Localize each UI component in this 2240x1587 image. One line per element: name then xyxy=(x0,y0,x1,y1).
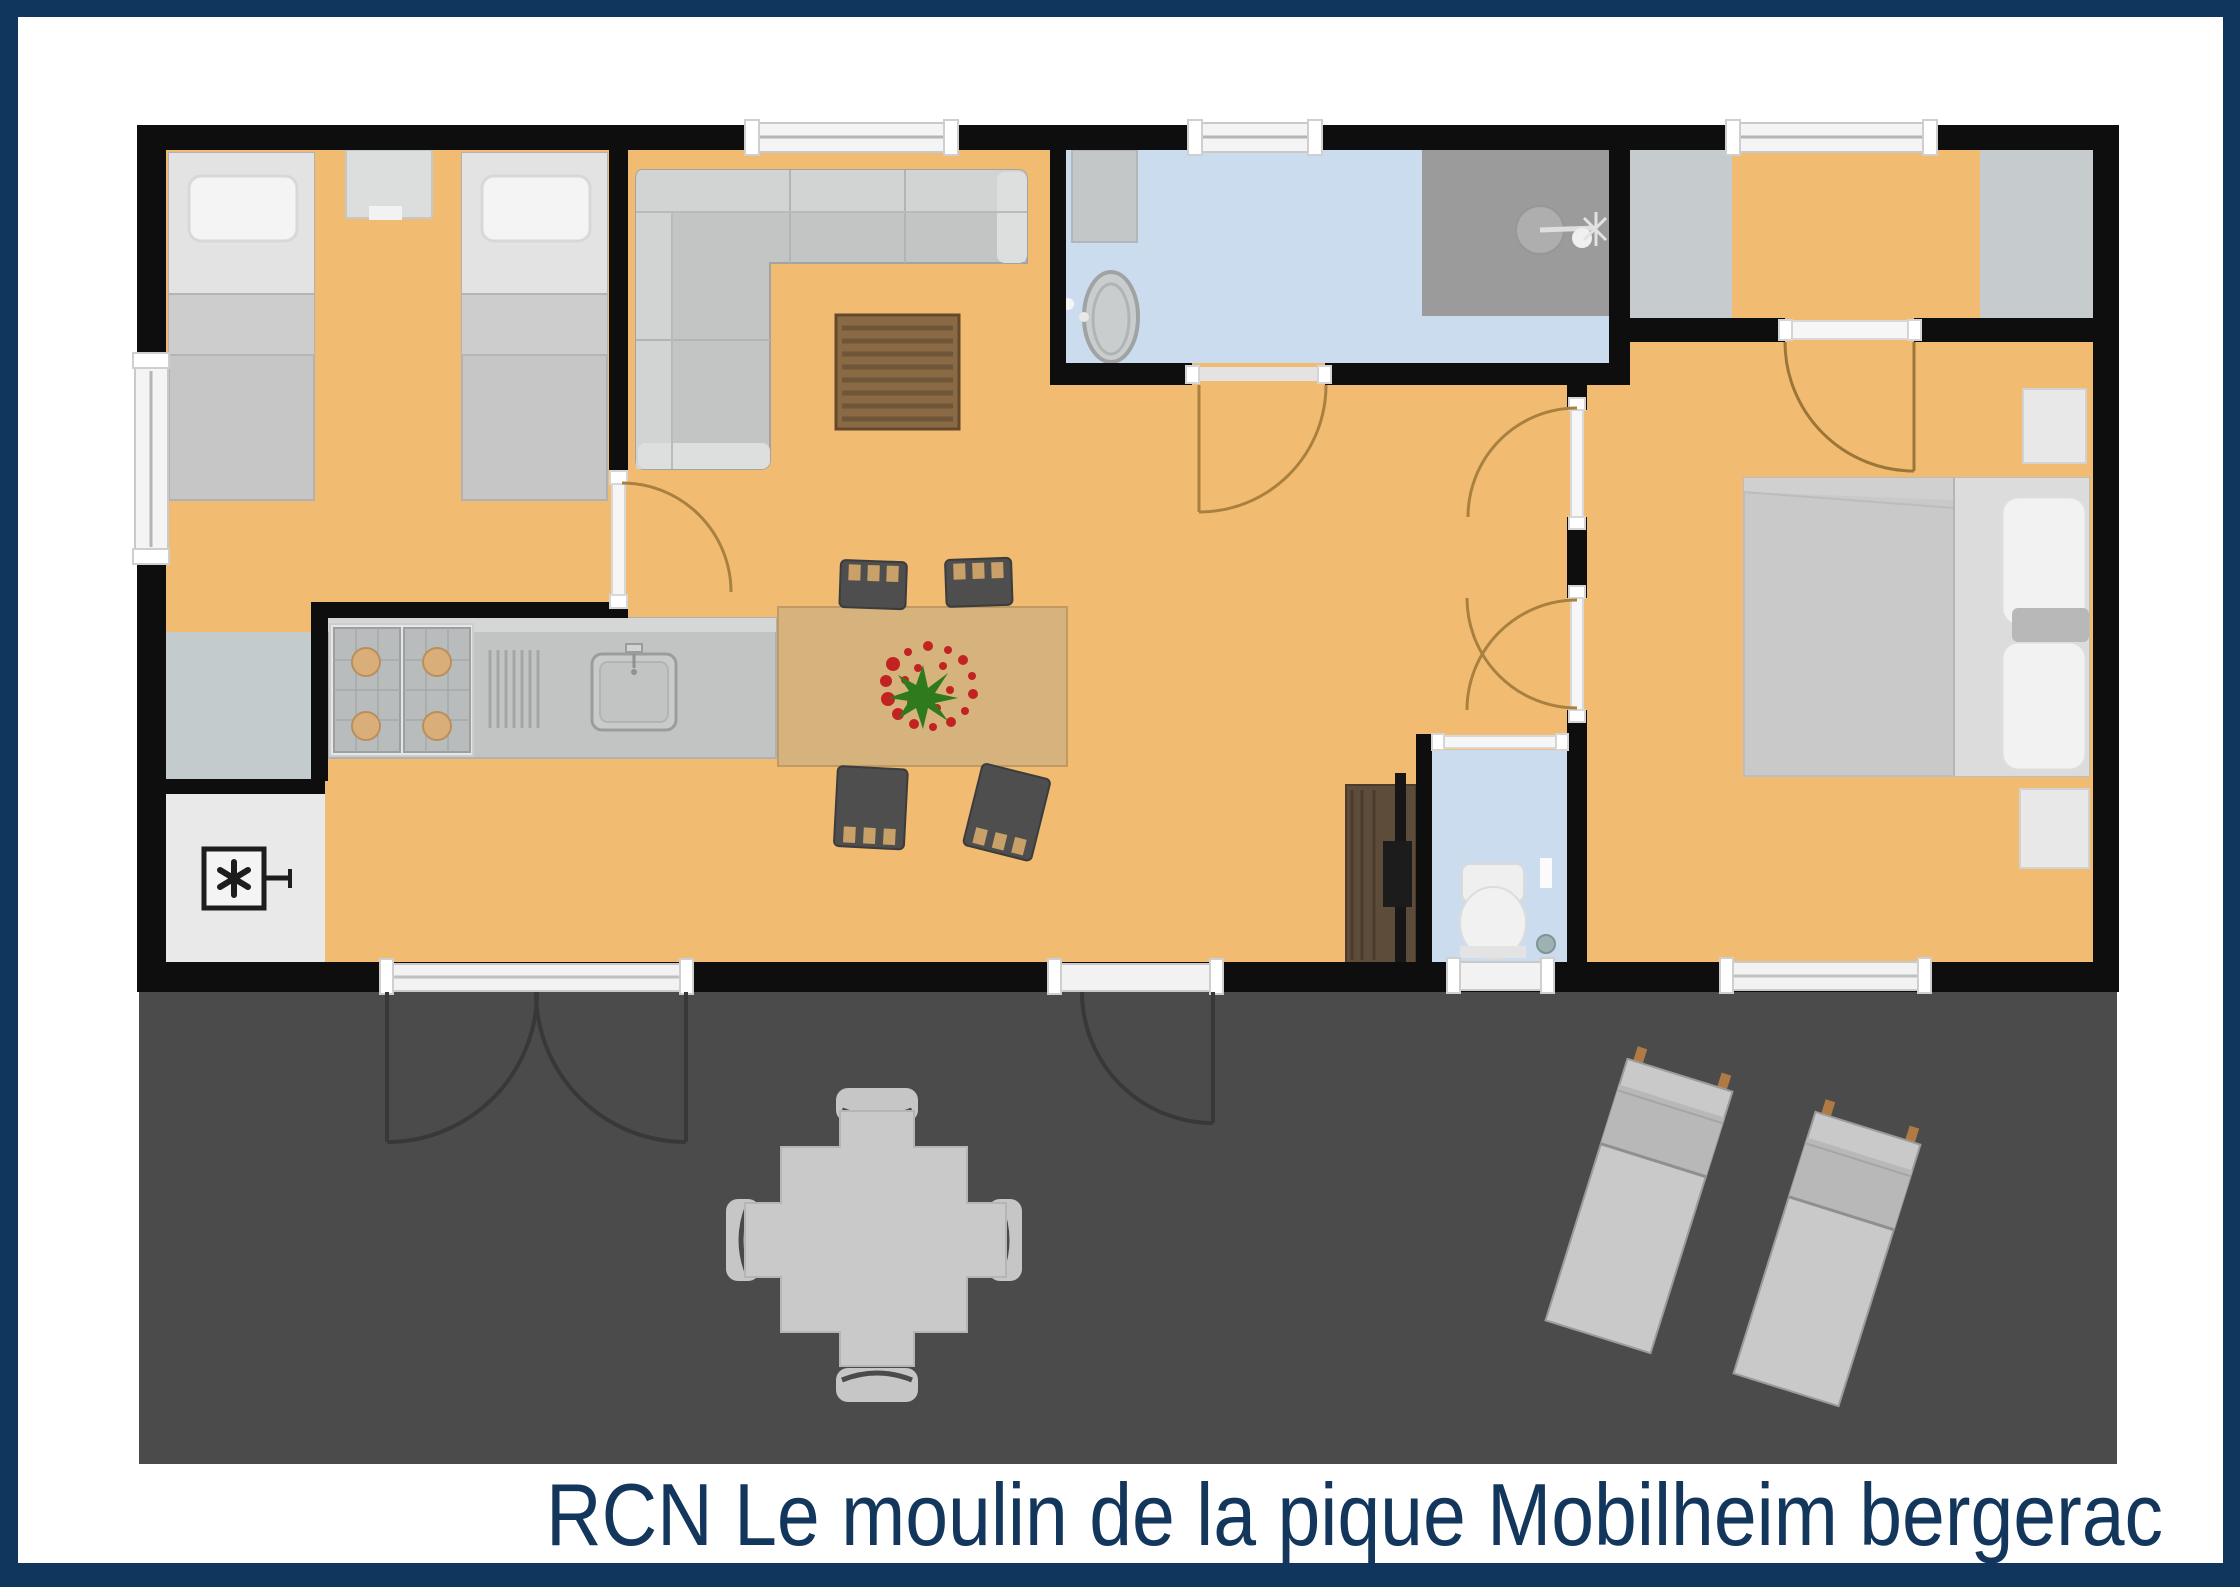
svg-text:RCN Le moulin de la pique Mobi: RCN Le moulin de la pique Mobilheim berg… xyxy=(546,1465,2163,1564)
